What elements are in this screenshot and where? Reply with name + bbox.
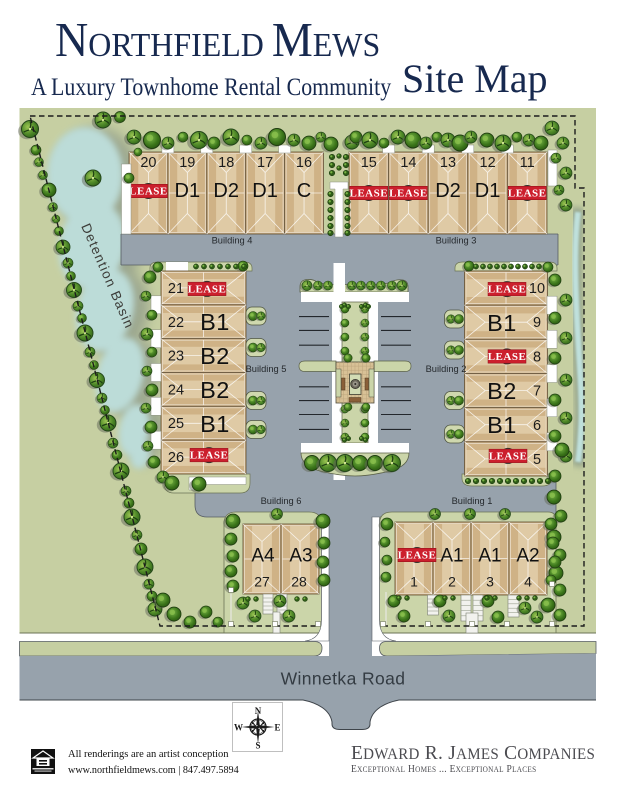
- svg-text:28: 28: [291, 574, 307, 590]
- svg-text:6: 6: [533, 418, 541, 434]
- svg-text:W: W: [234, 723, 243, 733]
- svg-text:Building 4: Building 4: [212, 236, 253, 246]
- svg-text:15: 15: [361, 155, 377, 171]
- svg-text:LEASE: LEASE: [488, 351, 527, 363]
- svg-text:LEASE: LEASE: [488, 284, 527, 296]
- svg-text:D2: D2: [213, 180, 239, 202]
- svg-text:A1: A1: [440, 546, 463, 567]
- svg-text:N: N: [255, 706, 262, 716]
- svg-text:12: 12: [480, 155, 496, 171]
- svg-text:Building 1: Building 1: [452, 496, 493, 506]
- svg-text:A4: A4: [251, 546, 275, 567]
- svg-text:B1: B1: [200, 411, 230, 437]
- svg-text:A2: A2: [516, 546, 539, 567]
- svg-text:www.northfieldmews.com | 847.4: www.northfieldmews.com | 847.497.5894: [68, 765, 240, 776]
- svg-text:EXCEPTIONAL HOMES ... EXCEPTIO: EXCEPTIONAL HOMES ... EXCEPTIONAL PLACES: [351, 764, 536, 776]
- svg-text:Building 3: Building 3: [436, 236, 477, 246]
- svg-text:LEASE: LEASE: [188, 283, 227, 295]
- svg-text:2: 2: [448, 574, 456, 590]
- svg-text:3: 3: [486, 574, 494, 590]
- svg-text:9: 9: [533, 315, 541, 331]
- svg-text:10: 10: [529, 281, 545, 297]
- svg-text:Building 2: Building 2: [426, 364, 467, 374]
- svg-text:23: 23: [168, 349, 184, 365]
- svg-text:26: 26: [168, 450, 184, 466]
- svg-text:7: 7: [533, 384, 541, 400]
- svg-text:D2: D2: [435, 180, 461, 202]
- svg-text:LEASE: LEASE: [508, 188, 547, 200]
- svg-text:LEASE: LEASE: [129, 186, 168, 198]
- svg-text:D1: D1: [252, 180, 278, 202]
- svg-text:LEASE: LEASE: [489, 450, 528, 462]
- svg-text:13: 13: [440, 155, 456, 171]
- svg-text:Site Map: Site Map: [402, 56, 548, 101]
- svg-text:27: 27: [254, 574, 270, 590]
- svg-text:19: 19: [179, 155, 195, 171]
- svg-text:25: 25: [168, 416, 184, 432]
- svg-text:All renderings are an artist c: All renderings are an artist conception: [68, 749, 229, 760]
- svg-text:B1: B1: [487, 412, 517, 438]
- svg-text:B2: B2: [200, 377, 230, 403]
- svg-text:16: 16: [296, 155, 312, 171]
- svg-text:17: 17: [257, 155, 273, 171]
- svg-text:LEASE: LEASE: [190, 450, 229, 462]
- svg-text:A3: A3: [289, 546, 312, 567]
- svg-text:B1: B1: [200, 309, 230, 335]
- svg-text:S: S: [255, 741, 260, 751]
- svg-text:D1: D1: [475, 180, 501, 202]
- svg-text:24: 24: [168, 382, 184, 398]
- svg-text:EDWARD R. JAMES COMPANIES: EDWARD R. JAMES COMPANIES: [351, 742, 595, 764]
- svg-text:LEASE: LEASE: [350, 188, 389, 200]
- svg-text:11: 11: [520, 155, 535, 171]
- svg-text:Building 5: Building 5: [246, 364, 287, 374]
- svg-text:A1: A1: [478, 546, 501, 567]
- svg-text:E: E: [274, 723, 280, 733]
- svg-text:D1: D1: [175, 180, 201, 202]
- svg-text:8: 8: [533, 349, 541, 365]
- svg-text:1: 1: [410, 574, 418, 590]
- svg-text:Building 6: Building 6: [261, 496, 302, 506]
- svg-text:18: 18: [218, 155, 234, 171]
- svg-text:4: 4: [524, 574, 532, 590]
- svg-text:B1: B1: [487, 310, 517, 336]
- svg-text:A Luxury Townhome Rental Commu: A Luxury Townhome Rental Community: [31, 74, 391, 102]
- svg-text:22: 22: [168, 315, 184, 331]
- svg-text:LEASE: LEASE: [398, 550, 437, 562]
- svg-text:21: 21: [168, 281, 184, 297]
- svg-text:Winnetka Road: Winnetka Road: [281, 669, 406, 689]
- svg-text:5: 5: [533, 452, 541, 468]
- svg-text:B2: B2: [487, 378, 517, 404]
- svg-text:LEASE: LEASE: [389, 188, 428, 200]
- svg-text:20: 20: [140, 155, 156, 171]
- svg-text:B2: B2: [200, 343, 230, 369]
- svg-text:C: C: [297, 180, 311, 202]
- svg-text:14: 14: [400, 155, 416, 171]
